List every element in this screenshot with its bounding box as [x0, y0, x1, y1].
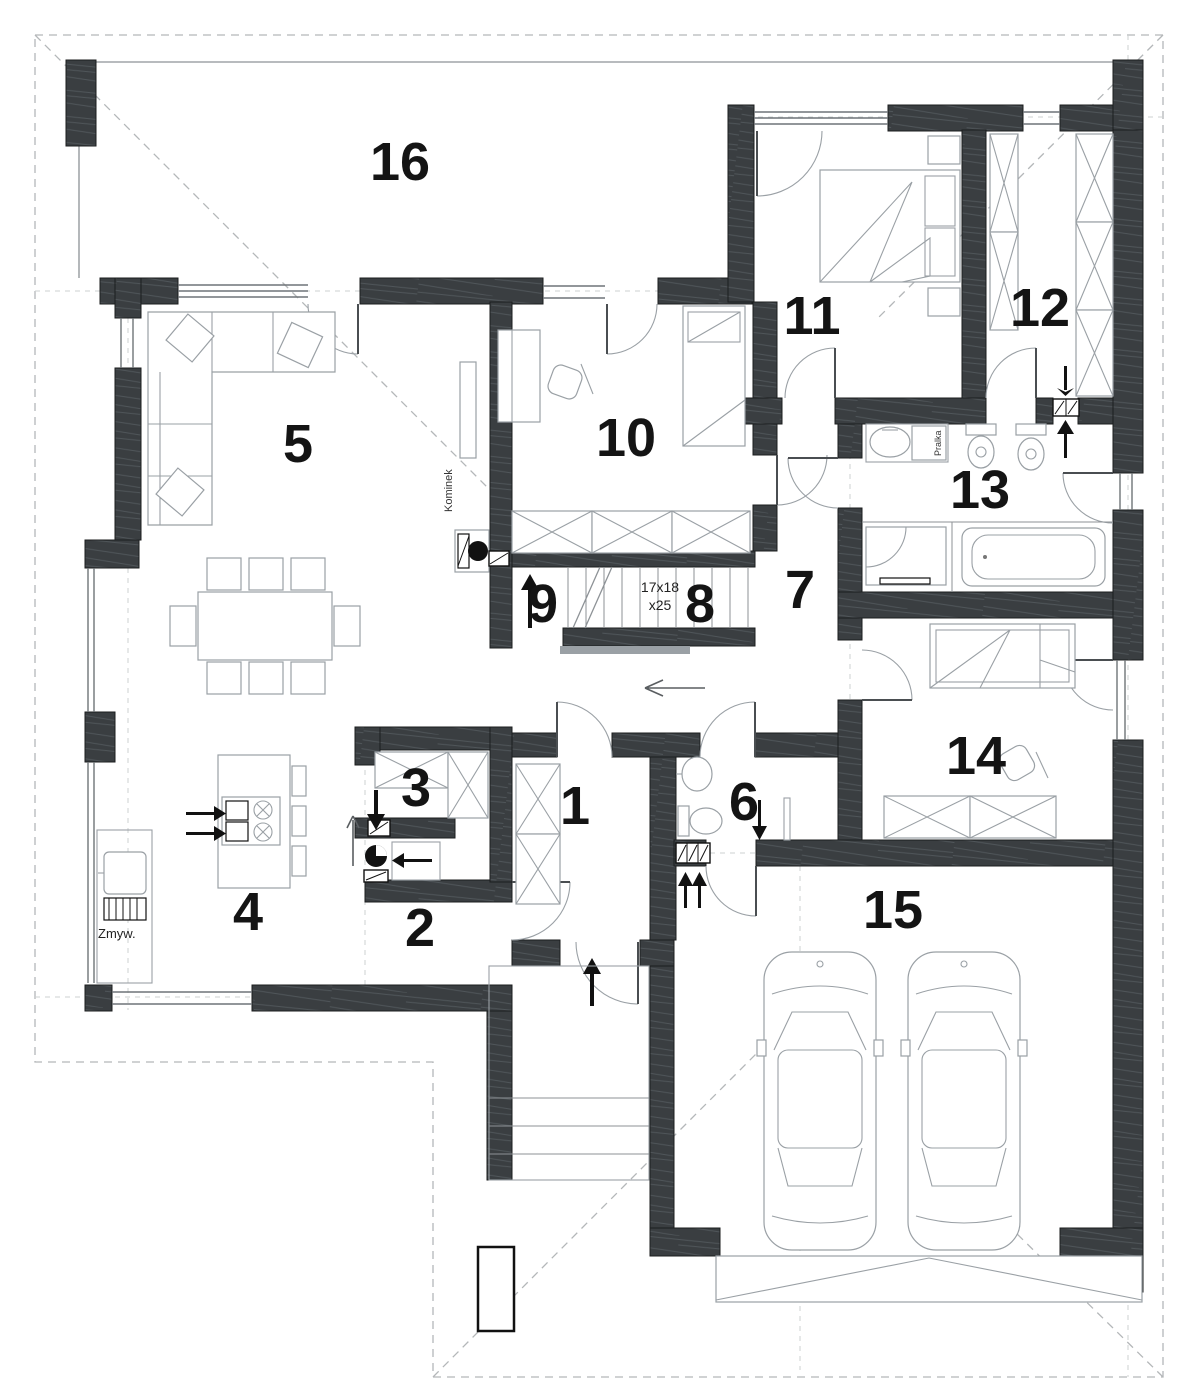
room-label-9: 9 — [528, 574, 558, 634]
toilet-icon — [678, 806, 722, 836]
room-label-12: 12 — [1010, 278, 1070, 338]
flow-arrow-room2 — [392, 853, 432, 868]
bidet-icon — [1016, 424, 1046, 470]
radiator — [784, 798, 790, 840]
kitchen-island — [218, 755, 306, 888]
office-chair-icon — [546, 363, 593, 401]
window-living-left — [121, 318, 133, 368]
window-kitchen-bottom — [112, 992, 252, 1004]
bathtub-icon — [962, 528, 1105, 586]
door-corridor-bedroom11 — [785, 348, 835, 398]
sink-icon — [98, 852, 146, 894]
dining-table — [170, 558, 360, 694]
door-corridor-bedroom14 — [862, 650, 912, 700]
room-label-8: 8 — [685, 574, 715, 634]
slider-window-bedroom11 — [754, 112, 888, 124]
kitchen-counter — [97, 830, 152, 983]
door-bath13-balcony — [1063, 473, 1113, 523]
room-label-4: 4 — [233, 882, 263, 942]
vent-arrows-garage — [678, 872, 707, 908]
door-closet12 — [986, 348, 1036, 398]
room-label-6: 6 — [729, 772, 759, 832]
closet-room10 — [512, 511, 750, 553]
fireplace-label: Kominek — [443, 469, 455, 512]
window-living-top — [543, 286, 605, 298]
bed-single-10 — [683, 306, 745, 446]
dishwasher-label: Zmyw. — [98, 926, 136, 941]
corner-glazing-left-upper — [88, 568, 94, 712]
vent-icon-bath13 — [1053, 399, 1079, 416]
stairs-dimension-2: x25 — [649, 597, 672, 613]
wardrobe-room14 — [884, 796, 1056, 838]
door-garage-entry — [706, 866, 756, 916]
vent-icon-garage — [676, 843, 710, 863]
room-label-13: 13 — [950, 460, 1010, 520]
stair-direction-arrow — [645, 680, 705, 696]
entry-arrow — [583, 958, 601, 1006]
dishwasher-icon — [104, 898, 146, 920]
room-label-2: 2 — [405, 898, 435, 958]
car-icon-right — [901, 952, 1027, 1250]
garage-door — [716, 1256, 1142, 1302]
corner-glazing-left-lower — [88, 762, 94, 983]
room-label-3: 3 — [401, 758, 431, 818]
nightstand — [928, 136, 960, 164]
entrance-steps — [489, 966, 649, 1180]
boiler-icon — [364, 820, 390, 882]
room-label-7: 7 — [785, 560, 815, 620]
bed-single-14 — [930, 624, 1075, 688]
bar-stool — [292, 806, 306, 836]
door-corridor-bath13 — [788, 458, 838, 508]
room-label-16: 16 — [370, 132, 430, 192]
door-hall9-hall1 — [557, 702, 612, 757]
stove-icon — [222, 797, 280, 845]
terrace-pillar — [66, 60, 96, 146]
bedroom11-furniture — [820, 136, 960, 316]
stair-handrail — [560, 646, 690, 654]
window-closet12-top — [1023, 112, 1060, 124]
car-icon-left — [757, 952, 883, 1250]
tv-unit — [460, 362, 476, 458]
room-label-15: 15 — [863, 880, 923, 940]
bar-stool — [292, 846, 306, 876]
chimney — [478, 1247, 514, 1331]
vent-arrow-down-12 — [1057, 366, 1074, 396]
vent-arrow-up-outline — [347, 816, 359, 866]
washing-machine-label: Pralka — [933, 430, 943, 456]
door-room10-terrace — [607, 304, 657, 354]
room-label-5: 5 — [283, 414, 313, 474]
balcony-door-bedroom14 — [1117, 660, 1125, 740]
room-label-11: 11 — [783, 286, 840, 346]
slider-window-living — [178, 285, 308, 297]
bed-double — [820, 170, 960, 282]
wardrobe-hall1 — [516, 764, 560, 904]
floor-plan-page: Zmyw. — [0, 0, 1200, 1390]
wc-sink-icon — [676, 757, 712, 791]
stairs-dimension-1: 17x18 — [641, 579, 679, 595]
vent-arrow-up-13 — [1057, 420, 1074, 458]
desk — [498, 330, 540, 422]
door-bedroom11-terrace — [757, 131, 822, 196]
nightstand — [928, 288, 960, 316]
floor-plan-canvas: Zmyw. — [0, 0, 1200, 1390]
room-label-10: 10 — [596, 408, 656, 468]
wardrobe-room3 — [375, 752, 488, 818]
balcony-door-bath13 — [1120, 473, 1132, 510]
door-corridor-room10 — [777, 455, 827, 505]
room-label-14: 14 — [946, 726, 1006, 786]
door-corridor-wc6 — [700, 702, 755, 757]
room-label-1: 1 — [560, 776, 590, 836]
bar-stool — [292, 766, 306, 796]
shower-icon — [866, 527, 946, 585]
